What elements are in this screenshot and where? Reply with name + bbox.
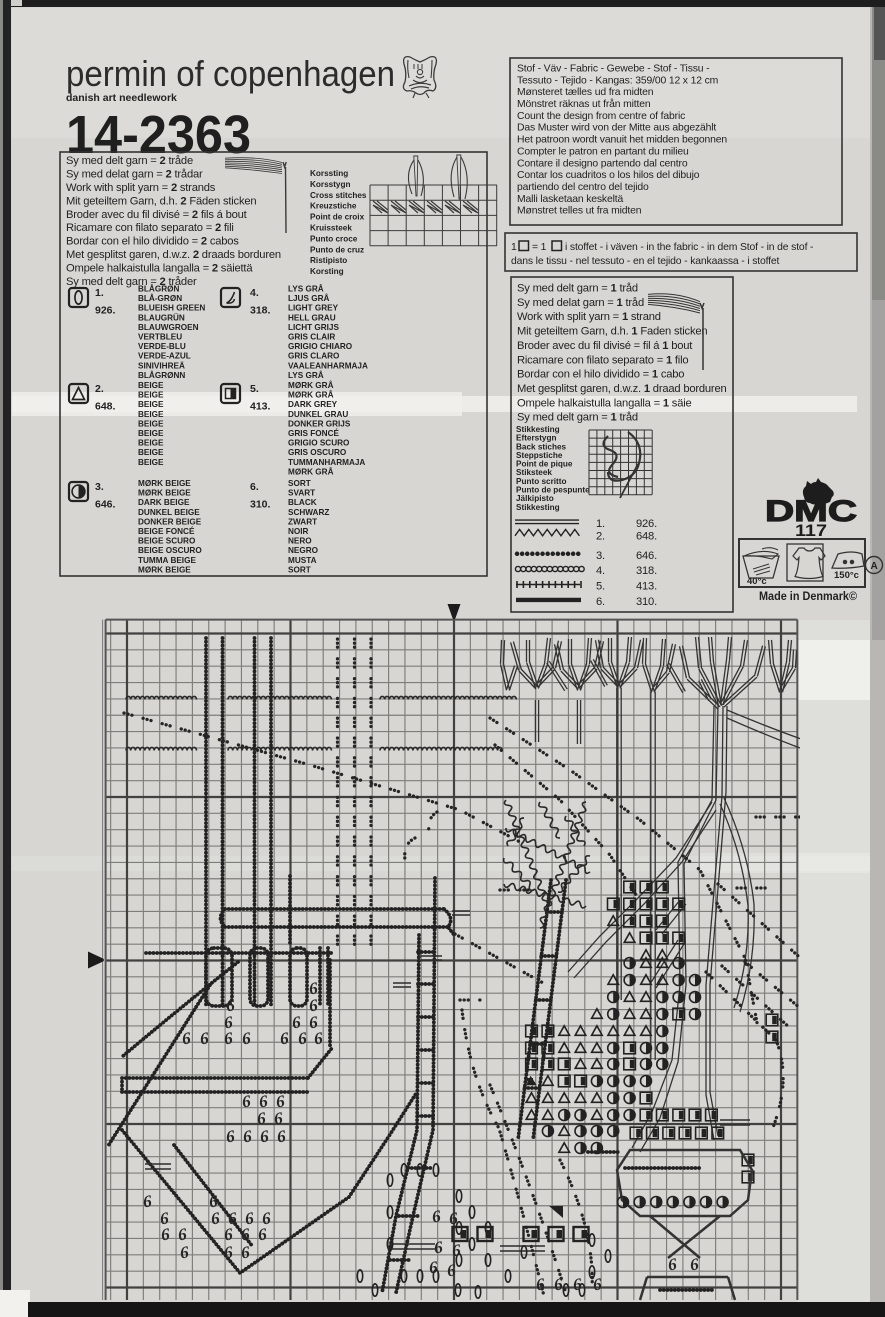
svg-text:LIGHT GREY: LIGHT GREY bbox=[288, 304, 339, 313]
svg-text:Malli lasketaan keskeltä: Malli lasketaan keskeltä bbox=[517, 194, 624, 205]
svg-text:Stikkesting: Stikkesting bbox=[516, 503, 560, 512]
svg-text:BLÅGRØN: BLÅGRØN bbox=[138, 284, 179, 294]
svg-text:MØRK GRÅ: MØRK GRÅ bbox=[288, 390, 334, 400]
svg-text:Sy med delt garn = 2 tråde: Sy med delt garn = 2 tråde bbox=[66, 155, 193, 167]
svg-text:40°c: 40°c bbox=[747, 576, 767, 587]
svg-text:BLÅGRØNN: BLÅGRØNN bbox=[138, 370, 185, 380]
svg-text:Stof - Väv - Fabric - Gewebe -: Stof - Väv - Fabric - Gewebe - Stof - Ti… bbox=[517, 64, 709, 75]
svg-text:6.: 6. bbox=[250, 481, 259, 493]
svg-text:648.: 648. bbox=[95, 401, 116, 413]
svg-text:310.: 310. bbox=[250, 499, 271, 511]
svg-text:Cross stitches: Cross stitches bbox=[310, 191, 367, 200]
svg-text:Stiksteek: Stiksteek bbox=[516, 468, 552, 477]
svg-text:Made in Denmark©: Made in Denmark© bbox=[759, 589, 857, 603]
svg-text:MUSTA: MUSTA bbox=[288, 556, 317, 565]
svg-text:HELL GRAU: HELL GRAU bbox=[288, 313, 336, 322]
svg-text:Tessuto - Tejido - Kangas: 359: Tessuto - Tejido - Kangas: 359/00 12 x 1… bbox=[517, 75, 718, 86]
svg-text:648.: 648. bbox=[636, 530, 657, 542]
svg-text:Korsting: Korsting bbox=[310, 267, 344, 276]
svg-text:Ricamare con filato separato =: Ricamare con filato separato = 2 fili bbox=[66, 222, 234, 234]
svg-text:413.: 413. bbox=[636, 581, 657, 593]
svg-text:BEIGE: BEIGE bbox=[138, 429, 164, 438]
svg-text:Kruissteek: Kruissteek bbox=[310, 224, 352, 233]
svg-text:BEIGE: BEIGE bbox=[138, 381, 164, 390]
svg-text:Mit geteiltem Garn, d.h. 2 Fäd: Mit geteiltem Garn, d.h. 2 Fäden sticken bbox=[66, 195, 256, 207]
svg-text:GRIS FONCÉ: GRIS FONCÉ bbox=[288, 428, 339, 438]
svg-text:Korssting: Korssting bbox=[310, 169, 348, 178]
svg-text:Work with split yarn = 1 stran: Work with split yarn = 1 strand bbox=[517, 311, 661, 323]
svg-text:646.: 646. bbox=[95, 499, 116, 511]
svg-text:Mit geteiltem Garn, d.h. 1 Fad: Mit geteiltem Garn, d.h. 1 Faden sticken bbox=[517, 326, 707, 338]
svg-text:MØRK BEIGE: MØRK BEIGE bbox=[138, 565, 191, 574]
svg-text:LYS GRÅ: LYS GRÅ bbox=[288, 370, 324, 380]
svg-text:Point de croix: Point de croix bbox=[310, 213, 365, 222]
svg-text:permin of copenhagen: permin of copenhagen bbox=[66, 53, 395, 94]
svg-text:BEIGE: BEIGE bbox=[138, 400, 164, 409]
svg-text:Met gesplitst garen, d.w.z. 2: Met gesplitst garen, d.w.z. 2 draads bor… bbox=[66, 249, 281, 261]
svg-text:partiendo del centro del tejid: partiendo del centro del tejido bbox=[517, 182, 649, 193]
svg-text:Das Muster wird von der Mitte: Das Muster wird von der Mitte aus abgezä… bbox=[517, 123, 716, 134]
svg-text:GRIS OSCURO: GRIS OSCURO bbox=[288, 448, 347, 457]
svg-text:DONKER GRIJS: DONKER GRIJS bbox=[288, 419, 351, 428]
svg-text:BEIGE: BEIGE bbox=[138, 458, 164, 467]
svg-text:BEIGE: BEIGE bbox=[138, 439, 164, 448]
svg-text:926.: 926. bbox=[636, 518, 657, 530]
svg-text:6.: 6. bbox=[596, 596, 605, 608]
svg-text:Compter le patron en partant d: Compter le patron en partant du milieu bbox=[517, 146, 689, 157]
svg-text:Kreuzstiche: Kreuzstiche bbox=[310, 202, 357, 211]
svg-text:Korsstygn: Korsstygn bbox=[310, 180, 351, 189]
svg-text:MØRK BEIGE: MØRK BEIGE bbox=[138, 489, 191, 498]
svg-text:310.: 310. bbox=[636, 596, 657, 608]
svg-text:LICHT GRIJS: LICHT GRIJS bbox=[288, 323, 339, 332]
svg-text:VAALEANHARMAJA: VAALEANHARMAJA bbox=[288, 361, 368, 370]
svg-text:Mønstret telles ut fra midten: Mønstret telles ut fra midten bbox=[517, 206, 642, 217]
svg-text:BEIGE: BEIGE bbox=[138, 448, 164, 457]
svg-text:MØRK GRÅ: MØRK GRÅ bbox=[288, 380, 334, 390]
svg-text:BLACK: BLACK bbox=[288, 498, 317, 507]
svg-text:GRIS CLAIR: GRIS CLAIR bbox=[288, 333, 335, 342]
svg-text:BEIGE FONCÉ: BEIGE FONCÉ bbox=[138, 526, 195, 536]
svg-text:Contare il designo partendo da: Contare il designo partendo dal centro bbox=[517, 158, 688, 169]
svg-text:Contar los cuadritos o los hil: Contar los cuadritos o los hilos del dib… bbox=[517, 170, 700, 181]
svg-text:318.: 318. bbox=[636, 565, 657, 577]
svg-text:DUNKEL BEIGE: DUNKEL BEIGE bbox=[138, 508, 200, 517]
svg-text:BEIGE: BEIGE bbox=[138, 419, 164, 428]
svg-text:MØRK GRÅ: MØRK GRÅ bbox=[288, 466, 334, 476]
svg-text:NOIR: NOIR bbox=[288, 527, 309, 536]
svg-text:DONKER BEIGE: DONKER BEIGE bbox=[138, 517, 202, 526]
svg-text:danish art needlework: danish art needlework bbox=[66, 92, 177, 104]
svg-text:Ompele halkaistulla langalla =: Ompele halkaistulla langalla = 2 säiettä bbox=[66, 263, 253, 275]
svg-text:NEGRO: NEGRO bbox=[288, 546, 319, 555]
svg-text:Punto croce: Punto croce bbox=[310, 234, 358, 243]
svg-text:BLUEISH GREEN: BLUEISH GREEN bbox=[138, 304, 205, 313]
svg-text:5.: 5. bbox=[596, 581, 605, 593]
svg-text:GRIGIO CHIARO: GRIGIO CHIARO bbox=[288, 342, 353, 351]
svg-text:= 1: = 1 bbox=[532, 242, 547, 253]
svg-text:Efterstygn: Efterstygn bbox=[516, 434, 557, 443]
svg-text:150°c: 150°c bbox=[834, 570, 859, 581]
svg-text:646.: 646. bbox=[636, 550, 657, 562]
svg-text:4.: 4. bbox=[596, 565, 605, 577]
svg-text:BLAUWGROEN: BLAUWGROEN bbox=[138, 323, 199, 332]
svg-text:Mönstret räknas ut från mitten: Mönstret räknas ut från mitten bbox=[517, 98, 651, 110]
svg-text:GRIS CLARO: GRIS CLARO bbox=[288, 352, 340, 361]
svg-text:Bordar con el hilo dividido =: Bordar con el hilo dividido = 1 cabo bbox=[517, 369, 684, 381]
svg-text:A: A bbox=[871, 561, 878, 572]
svg-text:Steppstiche: Steppstiche bbox=[516, 451, 563, 460]
svg-text:DUNKEL GRAU: DUNKEL GRAU bbox=[288, 410, 348, 419]
svg-text:VERDE-BLU: VERDE-BLU bbox=[138, 342, 186, 351]
svg-text:1.: 1. bbox=[95, 287, 104, 299]
svg-text:Sy med delat garn = 1 tråd: Sy med delat garn = 1 tråd bbox=[517, 297, 644, 309]
svg-text:1.: 1. bbox=[596, 518, 605, 530]
svg-text:Work with split yarn = 2 stran: Work with split yarn = 2 strands bbox=[66, 182, 216, 194]
svg-text:Het patroon wordt vanuit het m: Het patroon wordt vanuit het midden bego… bbox=[517, 135, 727, 146]
svg-text:i stoffet - i väven - in the f: i stoffet - i väven - in the fabric - in… bbox=[565, 242, 813, 253]
svg-text:Bordar con el hilo dividido =: Bordar con el hilo dividido = 2 cabos bbox=[66, 236, 239, 248]
svg-text:Broder avec du fil divisé = fi: Broder avec du fil divisé = fil á 1 bout bbox=[517, 340, 693, 352]
svg-text:2.: 2. bbox=[95, 383, 104, 395]
svg-text:BEIGE: BEIGE bbox=[138, 410, 164, 419]
svg-text:3.: 3. bbox=[95, 481, 104, 493]
svg-text:TUMMANHARMAJA: TUMMANHARMAJA bbox=[288, 458, 365, 467]
svg-text:TUMMA BEIGE: TUMMA BEIGE bbox=[138, 556, 196, 565]
svg-text:Count the design from centre o: Count the design from centre of fabric bbox=[517, 111, 685, 122]
svg-text:BLAUGRÜN: BLAUGRÜN bbox=[138, 312, 185, 322]
svg-text:Mønsteret tælles ud fra midten: Mønsteret tælles ud fra midten bbox=[517, 87, 654, 98]
svg-text:SORT: SORT bbox=[288, 479, 311, 488]
svg-text:BLÅ-GRØN: BLÅ-GRØN bbox=[138, 293, 182, 303]
svg-text:4.: 4. bbox=[250, 287, 259, 299]
svg-text:SINIVIHREÄ: SINIVIHREÄ bbox=[138, 360, 185, 370]
svg-text:Punto de cruz: Punto de cruz bbox=[310, 245, 364, 254]
svg-text:2.: 2. bbox=[596, 530, 605, 542]
svg-text:Sy med delat garn = 2 trådar: Sy med delat garn = 2 trådar bbox=[66, 168, 203, 180]
svg-text:SORT: SORT bbox=[288, 565, 311, 574]
svg-text:Ristipisto: Ristipisto bbox=[310, 256, 347, 265]
svg-text:LYS GRÅ: LYS GRÅ bbox=[288, 284, 324, 294]
svg-text:Ricamare con filato separato =: Ricamare con filato separato = 1 filo bbox=[517, 354, 688, 366]
svg-text:Punto de pespunte: Punto de pespunte bbox=[516, 486, 590, 495]
svg-text:926.: 926. bbox=[95, 305, 116, 317]
svg-text:117: 117 bbox=[795, 521, 827, 540]
svg-text:BEIGE OSCURO: BEIGE OSCURO bbox=[138, 546, 202, 555]
svg-text:BEIGE: BEIGE bbox=[138, 391, 164, 400]
svg-text:5.: 5. bbox=[250, 383, 259, 395]
svg-text:dans le tissu - nel tessuto -: dans le tissu - nel tessuto - en el teji… bbox=[511, 256, 780, 267]
svg-text:318.: 318. bbox=[250, 305, 271, 317]
svg-text:DARK BEIGE: DARK BEIGE bbox=[138, 498, 190, 507]
svg-text:Ompele halkaistulla langalla =: Ompele halkaistulla langalla = 1 säie bbox=[517, 397, 692, 409]
svg-text:ZWART: ZWART bbox=[288, 517, 317, 526]
svg-text:3.: 3. bbox=[596, 550, 605, 562]
svg-text:SVART: SVART bbox=[288, 489, 315, 498]
svg-text:Sy med delt garn = 1 tråd: Sy med delt garn = 1 tråd bbox=[517, 283, 638, 295]
svg-text:413.: 413. bbox=[250, 401, 271, 413]
svg-text:NERO: NERO bbox=[288, 537, 312, 546]
svg-text:GRIGIO SCURO: GRIGIO SCURO bbox=[288, 439, 350, 448]
svg-text:SCHWARZ: SCHWARZ bbox=[288, 508, 329, 517]
svg-text:DARK GREY: DARK GREY bbox=[288, 400, 338, 409]
svg-text:1: 1 bbox=[511, 242, 517, 253]
svg-text:Broder avec du fil divisé = 2: Broder avec du fil divisé = 2 fils á bou… bbox=[66, 209, 248, 221]
svg-text:VERDE-AZUL: VERDE-AZUL bbox=[138, 352, 191, 361]
svg-text:LJUS GRÅ: LJUS GRÅ bbox=[288, 293, 329, 303]
svg-text:Sy med delt garn = 1 tråd: Sy med delt garn = 1 tråd bbox=[517, 412, 638, 424]
svg-text:BEIGE SCURO: BEIGE SCURO bbox=[138, 537, 196, 546]
svg-text:VERTBLEU: VERTBLEU bbox=[138, 333, 182, 342]
svg-text:MØRK BEIGE: MØRK BEIGE bbox=[138, 479, 191, 488]
svg-text:Met gesplitst garen, d.w.z. 1: Met gesplitst garen, d.w.z. 1 draad bord… bbox=[517, 383, 727, 395]
